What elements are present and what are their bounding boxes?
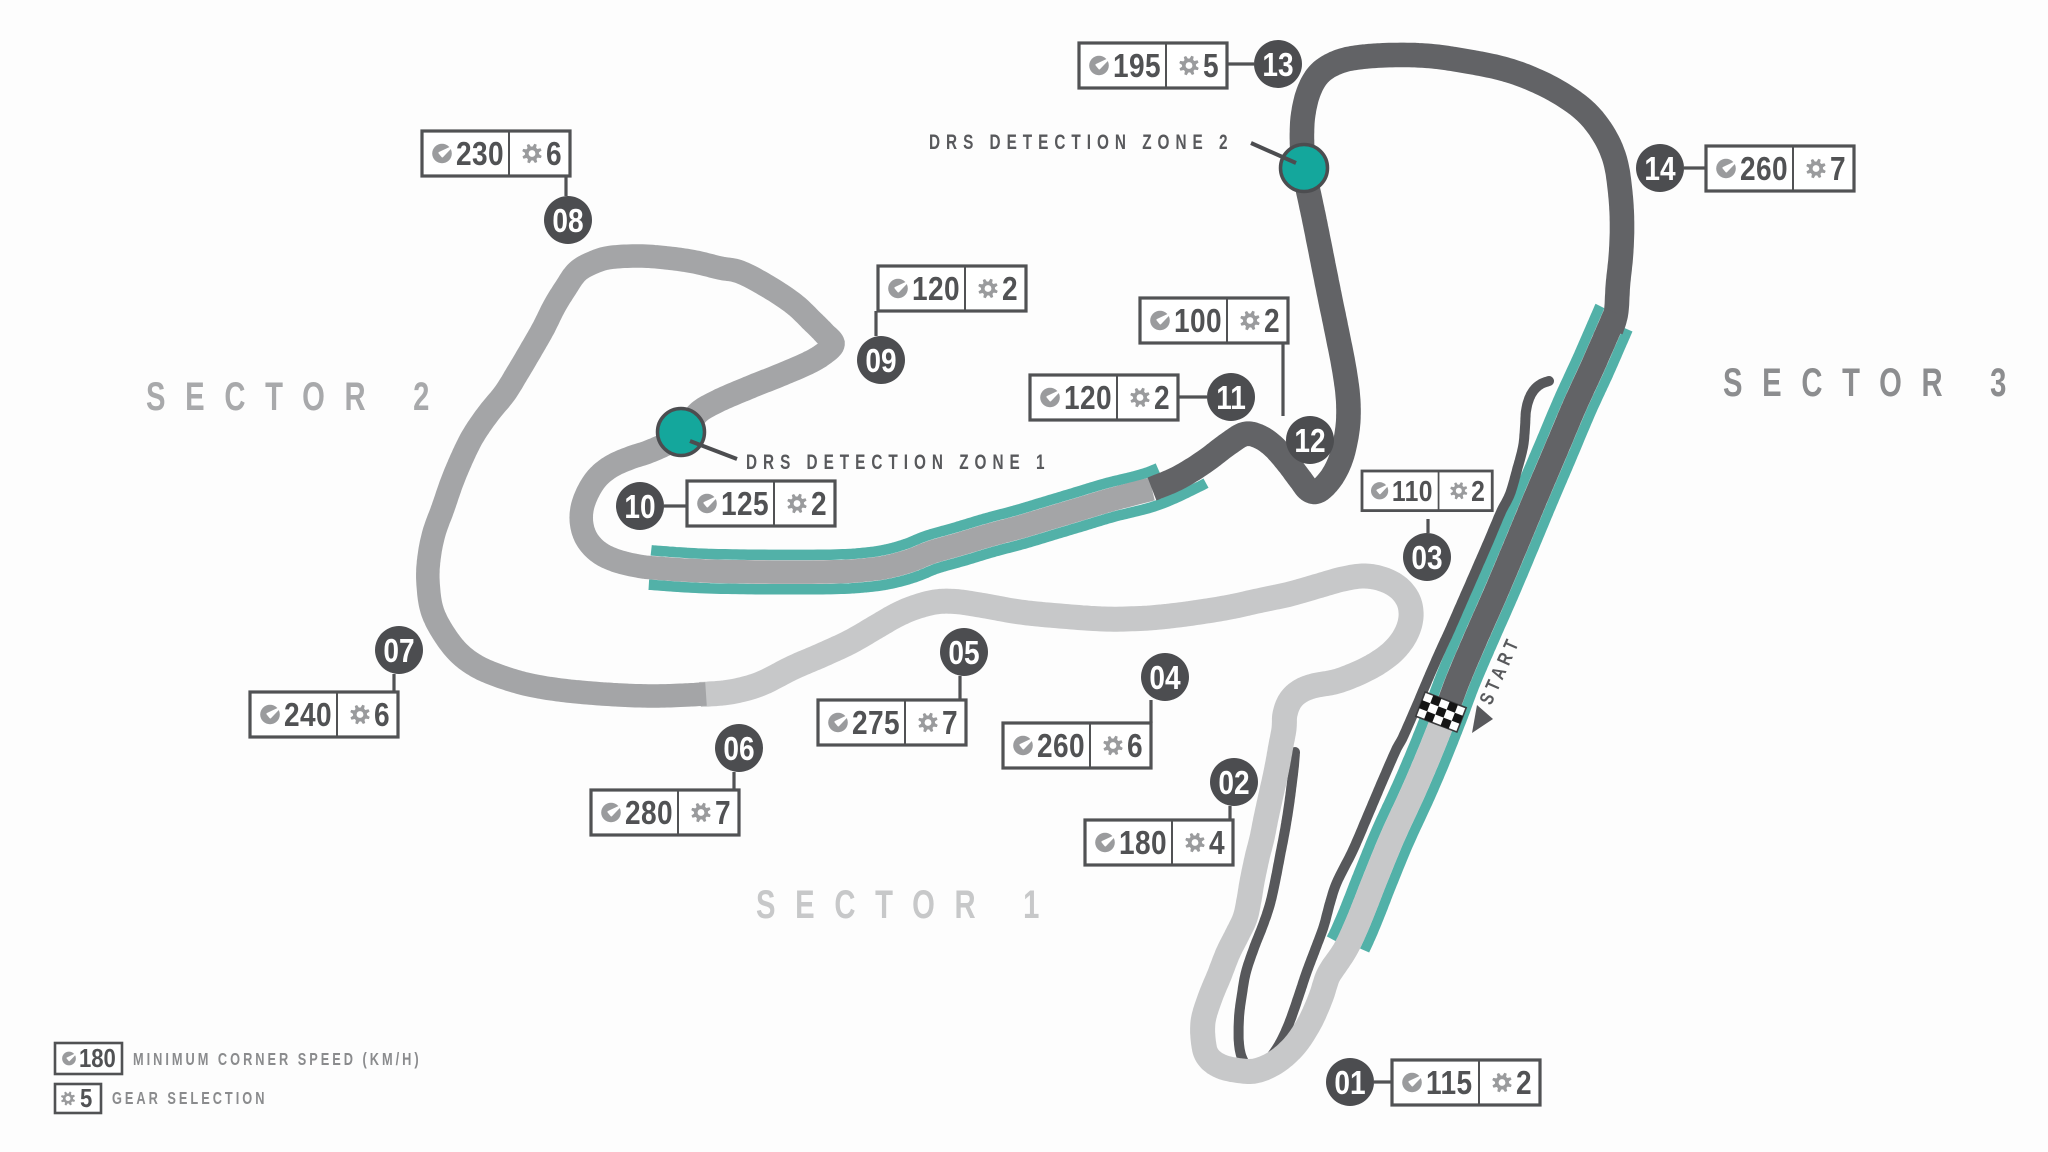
svg-text:180: 180 xyxy=(1119,825,1167,862)
svg-text:DRS DETECTION ZONE 1: DRS DETECTION ZONE 1 xyxy=(746,450,1050,474)
svg-text:5: 5 xyxy=(80,1084,92,1113)
svg-text:195: 195 xyxy=(1113,48,1161,85)
svg-text:GEAR SELECTION: GEAR SELECTION xyxy=(112,1089,267,1108)
svg-text:SECTOR 1: SECTOR 1 xyxy=(756,883,1059,928)
svg-text:6: 6 xyxy=(546,136,562,173)
svg-text:115: 115 xyxy=(1426,1065,1473,1102)
svg-text:2: 2 xyxy=(1154,380,1170,417)
svg-text:10: 10 xyxy=(624,489,655,526)
svg-text:100: 100 xyxy=(1174,303,1222,340)
svg-text:6: 6 xyxy=(374,697,390,734)
svg-text:14: 14 xyxy=(1644,151,1675,188)
svg-text:2: 2 xyxy=(1471,475,1485,507)
svg-text:05: 05 xyxy=(948,635,979,672)
svg-text:260: 260 xyxy=(1740,151,1788,188)
svg-text:06: 06 xyxy=(723,731,754,768)
svg-text:03: 03 xyxy=(1411,540,1442,577)
svg-text:125: 125 xyxy=(721,486,769,523)
svg-text:2: 2 xyxy=(1002,271,1018,308)
svg-text:260: 260 xyxy=(1037,728,1085,765)
svg-text:07: 07 xyxy=(383,633,414,670)
svg-text:13: 13 xyxy=(1262,47,1293,84)
svg-text:7: 7 xyxy=(715,795,731,832)
svg-text:04: 04 xyxy=(1149,660,1180,697)
svg-text:6: 6 xyxy=(1127,728,1143,765)
svg-text:110: 110 xyxy=(1392,475,1433,507)
svg-text:7: 7 xyxy=(942,705,958,742)
svg-text:2: 2 xyxy=(1516,1065,1532,1102)
svg-text:7: 7 xyxy=(1830,151,1846,188)
svg-text:240: 240 xyxy=(284,697,332,734)
svg-text:120: 120 xyxy=(1064,380,1112,417)
svg-text:120: 120 xyxy=(912,271,960,308)
svg-text:02: 02 xyxy=(1218,765,1249,802)
svg-text:MINIMUM CORNER SPEED (KM/H): MINIMUM CORNER SPEED (KM/H) xyxy=(133,1050,422,1069)
svg-text:01: 01 xyxy=(1334,1065,1365,1102)
svg-text:08: 08 xyxy=(552,203,583,240)
svg-text:275: 275 xyxy=(852,705,900,742)
svg-text:2: 2 xyxy=(811,486,827,523)
svg-text:230: 230 xyxy=(456,136,504,173)
svg-text:180: 180 xyxy=(79,1044,116,1073)
svg-text:11: 11 xyxy=(1216,380,1246,417)
svg-text:2: 2 xyxy=(1264,303,1280,340)
svg-text:09: 09 xyxy=(865,343,896,380)
svg-text:SECTOR 3: SECTOR 3 xyxy=(1723,361,2026,406)
svg-text:280: 280 xyxy=(625,795,673,832)
svg-text:12: 12 xyxy=(1294,423,1325,460)
svg-text:DRS DETECTION ZONE 2: DRS DETECTION ZONE 2 xyxy=(929,130,1233,154)
svg-text:5: 5 xyxy=(1203,48,1219,85)
svg-text:SECTOR 2: SECTOR 2 xyxy=(146,375,449,420)
svg-text:4: 4 xyxy=(1209,825,1225,862)
